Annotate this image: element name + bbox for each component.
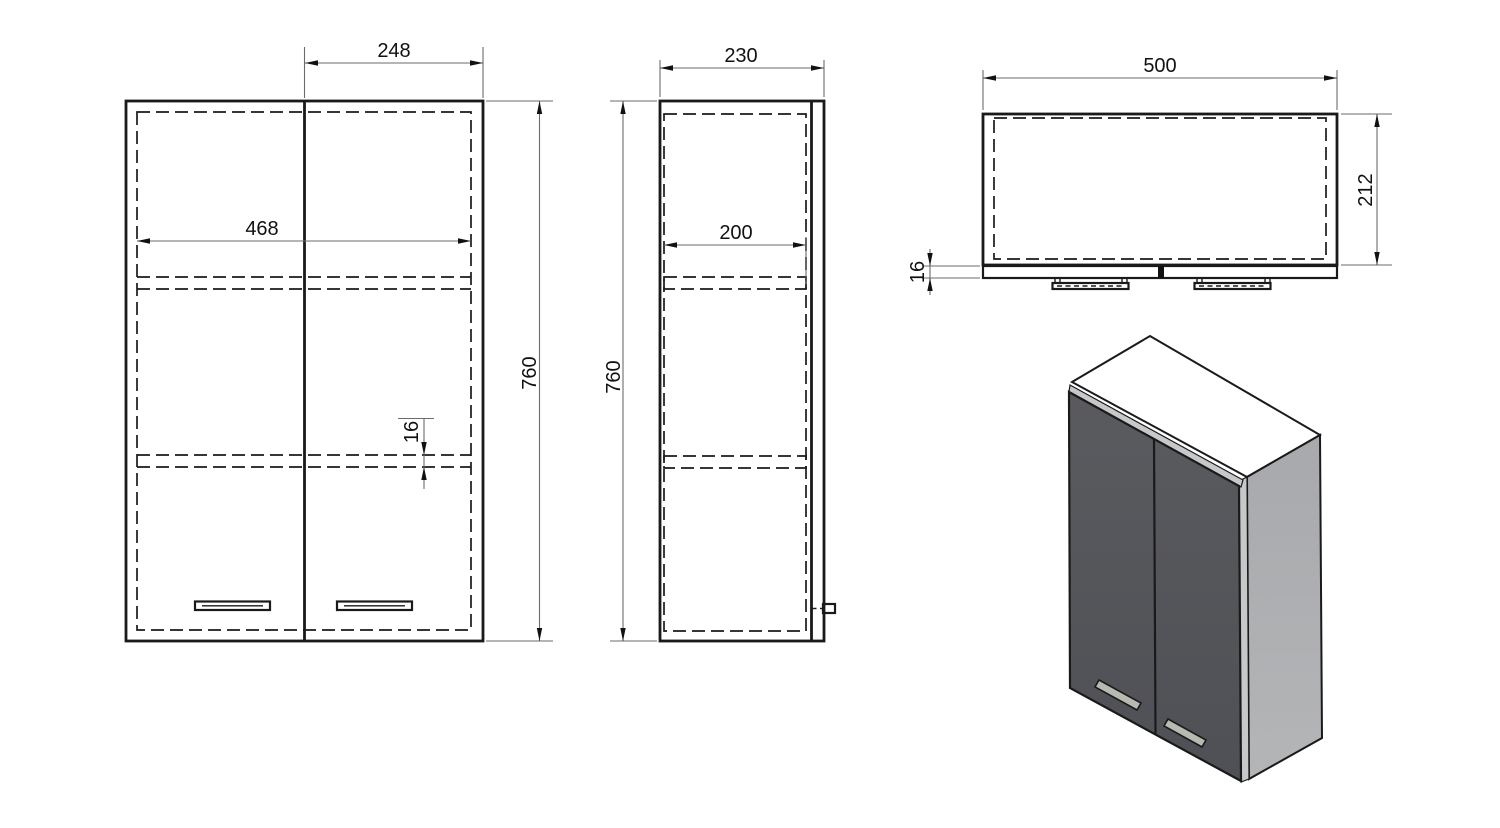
- arrowhead-right: [811, 65, 824, 70]
- arrowhead-left: [660, 65, 673, 70]
- dim-label-16: 16: [907, 261, 929, 283]
- side-dim-depth: 230: [660, 45, 824, 97]
- dim-label-500: 500: [1143, 55, 1176, 77]
- top-view: 500 212 16: [907, 55, 1392, 295]
- side-upper-shelf-hidden: [664, 277, 806, 289]
- front-left-door-handle: [195, 602, 270, 611]
- cabinet-drawing-svg: 248 468 760 16: [0, 0, 1500, 828]
- top-door-gap: [1158, 266, 1164, 278]
- front-dim-shelf-thickness: 16: [398, 419, 434, 490]
- side-dim-shelf-depth: 200: [664, 222, 806, 284]
- arrowhead-up: [421, 467, 426, 480]
- side-door-handle: [812, 604, 836, 613]
- side-view: 230 760 200: [603, 45, 835, 641]
- top-dim-door-thickness: 16: [907, 249, 980, 295]
- top-dim-carcass-depth: 212: [1341, 114, 1392, 265]
- arrowhead-up: [537, 101, 542, 114]
- arrowhead-right: [470, 60, 483, 65]
- arrowhead-up: [620, 101, 625, 114]
- top-right-door-handle: [1195, 278, 1271, 289]
- iso-view: [1069, 336, 1322, 782]
- dim-label-760: 760: [603, 360, 625, 393]
- top-carcass-outline: [983, 114, 1337, 265]
- front-right-door-handle: [337, 602, 412, 611]
- dim-label-230: 230: [724, 45, 757, 67]
- arrowhead-left: [305, 60, 318, 65]
- arrowhead-right: [793, 242, 806, 247]
- side-cabinet-outline: [660, 101, 824, 641]
- arrowhead-left: [137, 238, 150, 243]
- arrowhead-left: [664, 242, 677, 247]
- arrowhead-down: [620, 628, 625, 641]
- front-dim-height: 760: [486, 101, 553, 641]
- top-left-door-handle: [1053, 278, 1129, 289]
- dim-label-16: 16: [401, 421, 423, 443]
- side-hidden-carcass: [664, 114, 806, 631]
- front-dim-door-width: 248: [305, 40, 484, 98]
- dim-label-468: 468: [245, 218, 278, 240]
- arrowhead-right: [458, 238, 471, 243]
- side-dim-height: 760: [603, 101, 657, 641]
- iso-right-face: [1247, 435, 1322, 779]
- arrowhead-down: [537, 628, 542, 641]
- front-view: 248 468 760 16: [126, 40, 553, 641]
- dim-label-760: 760: [519, 356, 541, 389]
- top-hidden-interior: [994, 118, 1326, 259]
- side-lower-shelf-hidden: [664, 456, 806, 468]
- arrowhead-left: [983, 75, 996, 80]
- arrowhead-up: [1374, 114, 1379, 127]
- iso-door-split-line: [1154, 439, 1156, 734]
- dim-label-212: 212: [1355, 173, 1377, 206]
- technical-drawing-page: 248 468 760 16: [0, 0, 1500, 828]
- arrowhead-down: [1374, 252, 1379, 265]
- dim-label-248: 248: [377, 40, 410, 62]
- dim-label-200: 200: [719, 222, 752, 244]
- arrowhead-right: [1324, 75, 1337, 80]
- top-dim-width: 500: [983, 55, 1337, 110]
